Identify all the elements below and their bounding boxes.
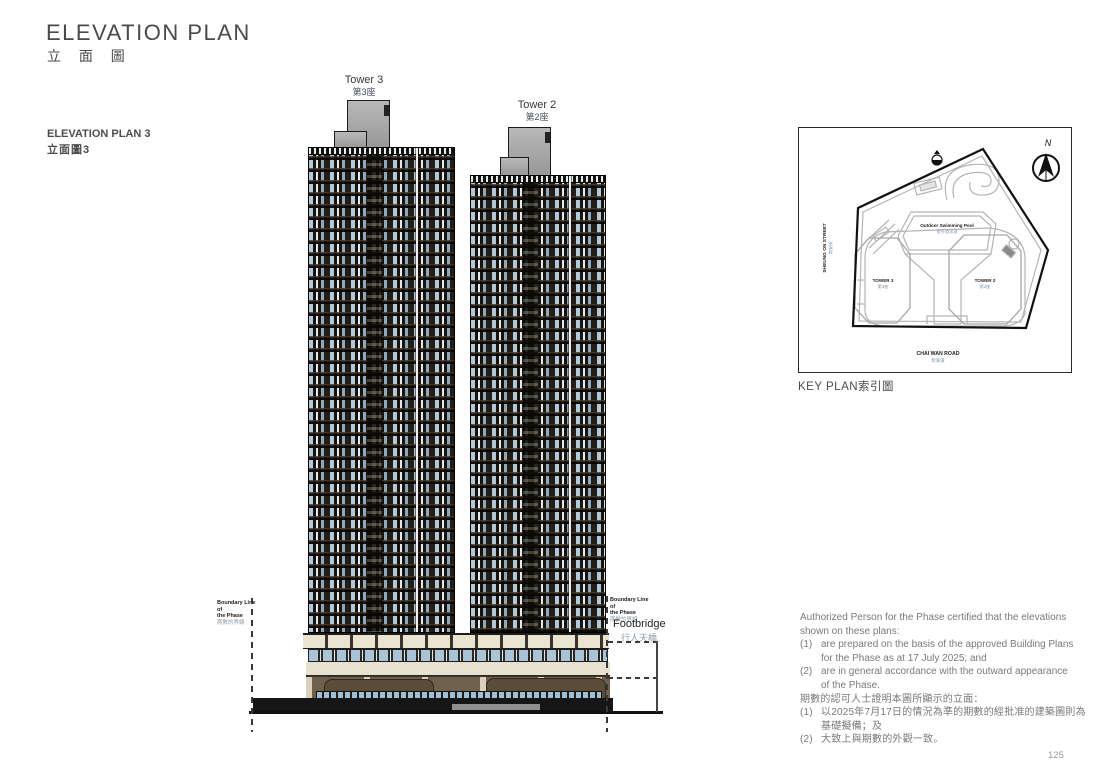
keyplan-street-left-label: SHEUNG ON STREET 常安街 <box>822 223 834 272</box>
podium-transfer-band <box>303 633 609 649</box>
cert-zh-item: (1) 以2025年7月17日的情況為準的期數的經批准的建築圖則為基礎擬備；及 <box>800 706 1096 733</box>
tower3-roof-antenna <box>384 105 389 116</box>
boundary-right-line <box>606 596 608 732</box>
keyplan-tower3-label-zh: 第3座 <box>878 283 889 290</box>
tower2-facade <box>470 175 606 633</box>
tower3-label-zh: 第3座 <box>319 85 409 98</box>
keyplan-pool-label: Outdoor Swimming Pool <box>920 223 974 228</box>
keyplan-box: N Outdoor Swimming Pool 室外游泳池 TOWER 3 第3… <box>798 127 1072 373</box>
keyplan-tower3-label: TOWER 3 <box>873 278 894 283</box>
keyplan-tower2-label: TOWER 2 <box>975 278 996 283</box>
keyplan-drawing: N Outdoor Swimming Pool 室外游泳池 TOWER 3 第3… <box>799 128 1070 371</box>
page-title-zh: 立 面 圖 <box>47 46 132 66</box>
cert-en-item: (1) are prepared on the basis of the app… <box>800 638 1096 665</box>
podium-base <box>253 698 613 711</box>
svg-text:N: N <box>1045 138 1052 148</box>
plan-label-zh: 立面圖3 <box>47 141 90 157</box>
keyplan-caption: KEY PLAN索引圖 <box>798 378 894 394</box>
podium-window-band <box>308 649 608 662</box>
plan-label: ELEVATION PLAN 3 <box>47 128 151 140</box>
cert-en-item: (2) are in general accordance with the o… <box>800 665 1096 692</box>
tower3-core-strip <box>367 154 382 632</box>
tower3-facade <box>308 147 455 633</box>
tower2-core-strip <box>523 182 538 632</box>
keyplan-tower2-label-zh: 第2座 <box>980 283 991 290</box>
brochure-page: ELEVATION PLAN 立 面 圖 ELEVATION PLAN 3 立面… <box>0 0 1101 783</box>
tower3-facade-seam <box>416 148 418 632</box>
keyplan-road-bottom-label: CHAI WAN ROAD <box>917 351 960 357</box>
keyplan-pool-label-zh: 室外游泳池 <box>937 228 959 235</box>
footbridge-dash-top <box>608 641 657 643</box>
tower2-label-zh: 第2座 <box>492 110 582 123</box>
podium-mid-band <box>306 662 610 676</box>
page-number: 125 <box>1048 750 1064 761</box>
cert-en-line: Authorized Person for the Phase certifie… <box>800 611 1096 625</box>
cert-zh-item: (2) 大致上與期數的外觀一致。 <box>800 733 1096 747</box>
elevation-marker-icon <box>932 150 942 165</box>
boundary-left-line <box>251 598 253 732</box>
svg-text:常安街: 常安街 <box>827 242 834 255</box>
ground-line <box>249 711 663 714</box>
page-title: ELEVATION PLAN <box>46 20 251 46</box>
cert-zh-intro: 期數的認可人士證明本圖所顯示的立面： <box>800 693 1096 707</box>
keyplan-road-bottom-label-zh: 柴灣道 <box>931 357 945 364</box>
certification-note: Authorized Person for the Phase certifie… <box>800 611 1096 747</box>
cert-en-line: shown on these plans: <box>800 625 1096 639</box>
footbridge-dash-bottom <box>608 677 657 679</box>
north-arrow-icon: N <box>1033 138 1059 181</box>
podium-base-strip <box>452 704 540 710</box>
footbridge-support-line <box>656 641 658 712</box>
tower2-roof-antenna <box>545 132 550 143</box>
tower2-roof-annex <box>500 157 529 176</box>
tower2-facade-seam <box>569 176 571 632</box>
